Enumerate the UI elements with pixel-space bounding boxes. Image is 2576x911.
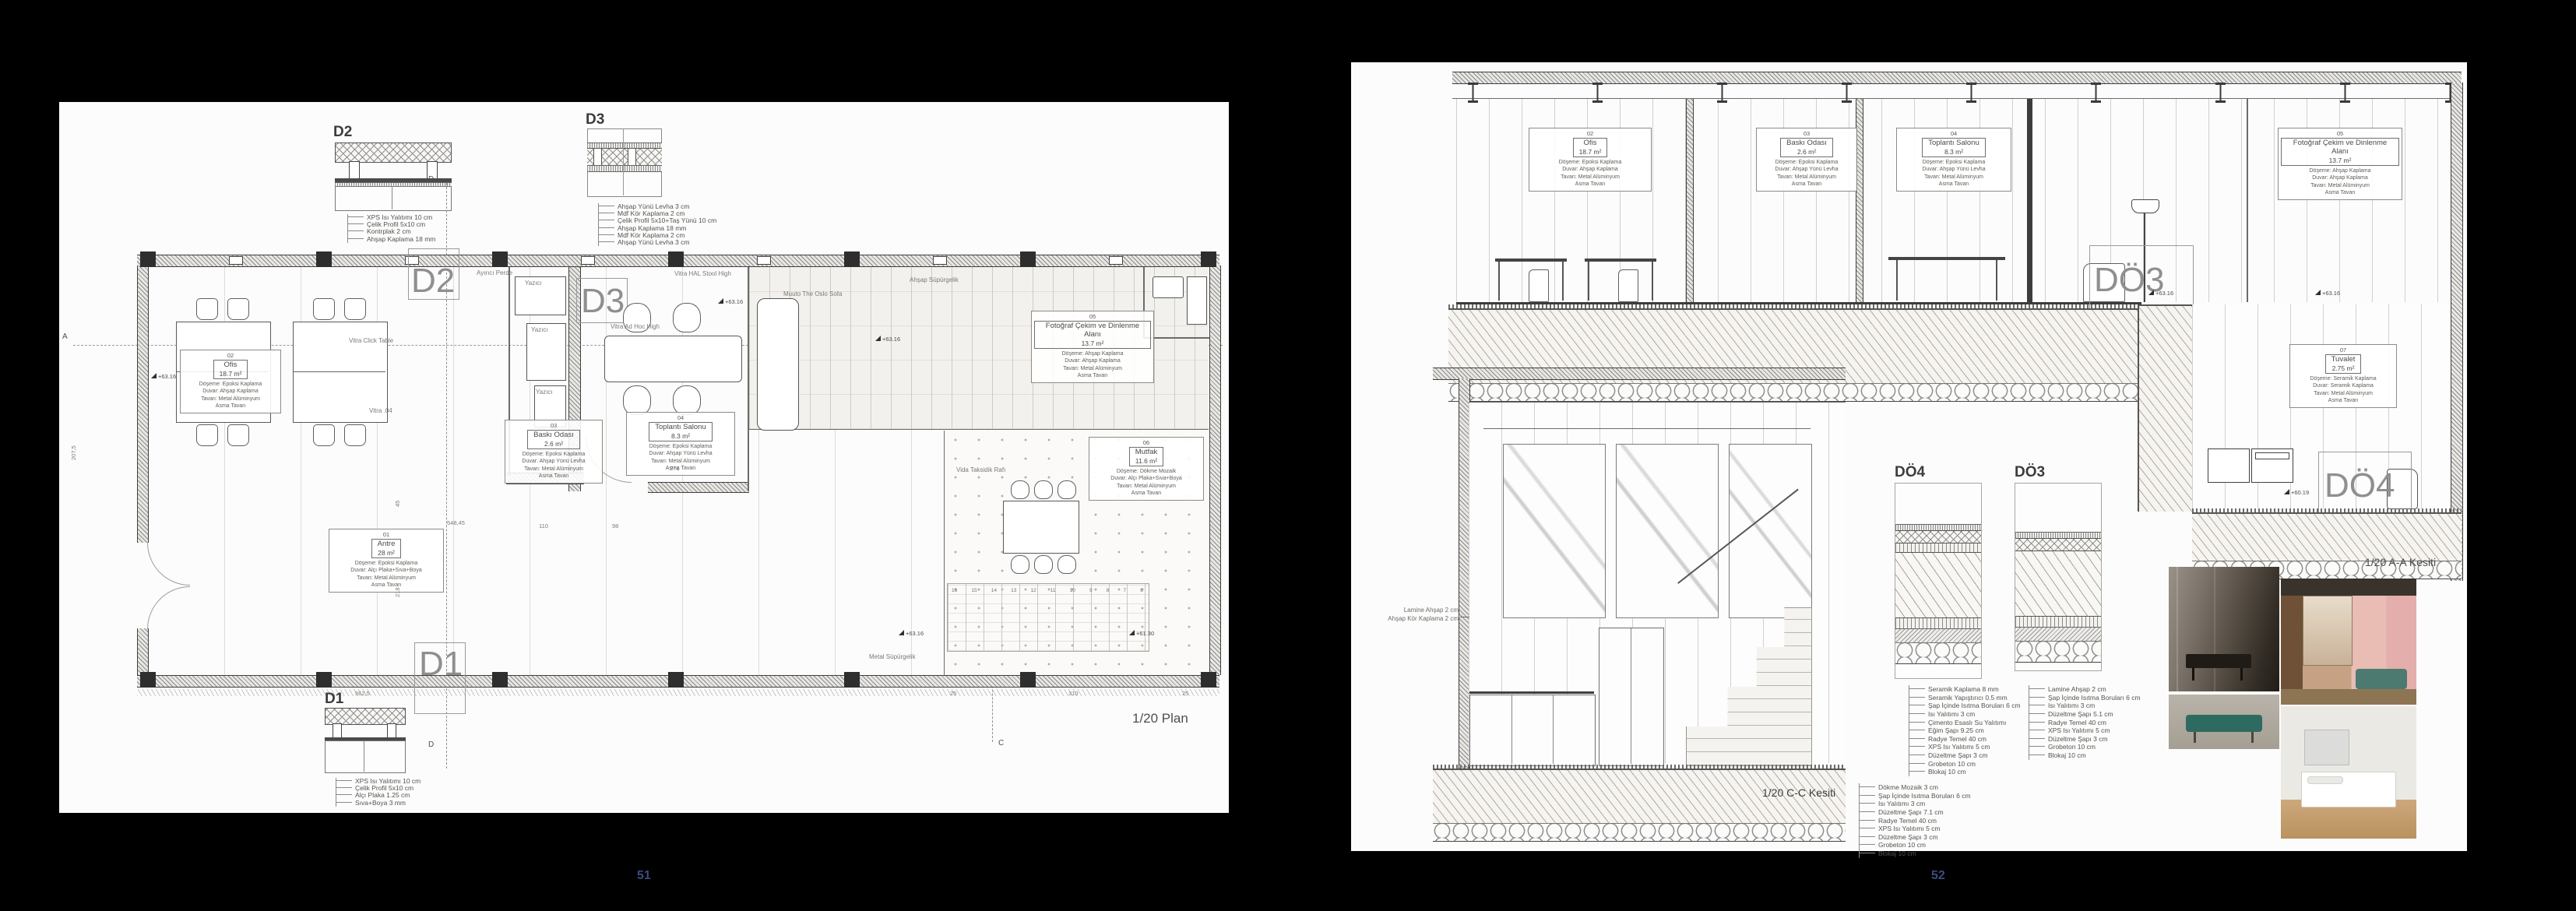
column <box>1020 672 1036 688</box>
office-chair <box>313 424 335 446</box>
aa-ground-stones <box>1448 383 2138 402</box>
dining-chair <box>1011 555 1029 574</box>
service-counter <box>1187 276 1207 325</box>
aa-retaining-wall <box>2138 304 2194 512</box>
stair-block <box>947 583 1149 652</box>
dim-207: 207,5 <box>70 445 77 460</box>
room-label-aa-ofis: 02 Ofis 18.7 m² Döşeme: Epoksi KaplamaDu… <box>1529 128 1652 192</box>
marker-d2: D2 <box>411 264 455 298</box>
ann-raf: Vida Taksidik Rafı <box>956 466 1005 473</box>
cc-section-label: 1/20 C-C Kesiti <box>1762 786 1835 799</box>
aa-office-chair <box>1529 269 1549 302</box>
column <box>316 672 332 688</box>
plan-wall-left-lower <box>137 628 149 675</box>
mullion <box>1109 256 1123 265</box>
detail-d2-label: D2 <box>333 124 352 141</box>
column <box>140 672 156 688</box>
mullion <box>581 256 595 265</box>
meeting-stool <box>623 385 651 415</box>
level-mark: +63.16 <box>151 373 176 380</box>
office-chair <box>196 424 218 446</box>
dim-548: 548,45 <box>447 519 465 526</box>
dim-25a: 25 <box>950 690 956 697</box>
cc-floor-legend: Dökme Mozaik 3 cmŞap İçinde Isıtma Borul… <box>1859 783 1971 858</box>
ibeam-column <box>1592 83 1603 103</box>
stair-numbers: 161514131211109876 <box>952 588 1143 593</box>
cc-wall-note-leader <box>1460 617 1469 617</box>
ibeam-column <box>1842 83 1852 103</box>
printer-label: Yazıcı <box>525 280 542 287</box>
printer-label: Yazıcı <box>536 389 553 396</box>
dim-562: 562,5 <box>355 690 370 697</box>
left-page-plan: D2 XPS Isı Yalıtımı 10 cmÇelik Profil 5x… <box>59 102 1229 813</box>
detail-d3-legend: Ahşap Yünü Levha 3 cmMdf Kör Kaplama 2 c… <box>598 203 716 246</box>
ibeam-column <box>1717 83 1727 103</box>
detail-d1-label: D1 <box>325 691 343 708</box>
detail-do3-column <box>2015 483 2102 671</box>
room-label-mutfak: 06 Mutfak 11.6 m² Döşeme: Dökme MozaikDu… <box>1089 437 1204 501</box>
detail-d2: D2 XPS Isı Yalıtımı 10 cmÇelik Profil 5x… <box>333 124 352 141</box>
dim-98: 98 <box>612 522 618 529</box>
room-label-toplanti: 04 Toplantı Salonu 8.3 m² Döşeme: Epoksi… <box>626 412 735 476</box>
marker-d3: D3 <box>581 284 625 318</box>
room-label-baski: 03 Baskı Odası 2.6 m² Döşeme: Epoksi Kap… <box>505 420 603 484</box>
dim-25b: 25 <box>1182 690 1188 697</box>
axis-c: C <box>998 739 1004 747</box>
cc-window <box>1616 444 1719 618</box>
dining-chair <box>1011 480 1029 499</box>
column <box>492 251 508 267</box>
level-mark: +63.16 <box>875 336 900 343</box>
column <box>492 672 508 688</box>
plan-scale-label: 1/20 Plan <box>1132 711 1188 726</box>
photo-pink-curtain-room <box>2281 579 2416 705</box>
dim-45: 45 <box>394 501 401 507</box>
office-chair <box>227 424 249 446</box>
room-label-aa-baski: 03 Baskı Odası 2.6 m² Döşeme: Epoksi Kap… <box>1756 128 1857 192</box>
spread-background: { "document": { "background": "#000000",… <box>0 0 2576 911</box>
marker-do4: DÖ4 <box>2324 469 2395 503</box>
aa-wall-right-end <box>2451 83 2463 581</box>
aa-wall-4 <box>2247 99 2248 302</box>
photo-stone-lounge <box>2169 567 2279 691</box>
office-chair <box>196 298 218 320</box>
ann-vitra-click: Vitra Click Table <box>349 337 393 344</box>
room-label-aa-toplanti: 04 Toplantı Salonu 8.3 m² Döşeme: Epoksi… <box>1896 128 2011 192</box>
ann-ayirici-perde: Ayırıcı Perde <box>477 269 512 276</box>
mullion <box>229 256 243 265</box>
dining-table <box>1003 501 1079 554</box>
level-mark: +63.16 <box>899 630 924 637</box>
detail-d3: D3 Ahşap Yünü Levha 3 cmMdf Kör Kaplama … <box>586 111 604 128</box>
service-sink <box>1153 276 1184 298</box>
meeting-table <box>604 336 742 382</box>
ibeam-column <box>1468 83 1478 103</box>
detail-d3-drawing <box>587 128 662 197</box>
ibeam-column <box>2215 83 2226 103</box>
page-number-52: 52 <box>1931 869 1945 883</box>
dining-chair <box>1057 555 1076 574</box>
ibeam-column <box>2091 83 2101 103</box>
aa-roof-slab <box>1452 72 2462 84</box>
axis-d-top: D <box>428 175 434 184</box>
detail-d2-drawing <box>335 142 452 209</box>
aa-desk-leg <box>1562 262 1564 301</box>
dining-chair <box>1034 480 1053 499</box>
column <box>1020 251 1036 267</box>
room-label-fotograf: 05 Fotoğraf Çekim ve Dinlenme Alanı 13.7… <box>1031 311 1154 383</box>
cc-wall-note: Lamine Ahşap 2 cmAhşap Kör Kaplama 2 cm <box>1356 606 1459 623</box>
column <box>1201 251 1216 267</box>
aa-desk <box>1495 259 1567 262</box>
level-mark: +60.19 <box>2284 489 2309 496</box>
tuvalet-counter <box>2251 448 2293 483</box>
cc-window <box>1503 444 1606 618</box>
dim-110: 110 <box>539 522 548 529</box>
room-label-aa-fotograf: 05 Fotoğraf Çekim ve Dinlenme Alanı 13.7… <box>2278 128 2402 200</box>
mullion <box>933 256 947 265</box>
meeting-room-wall-bottom <box>648 482 749 493</box>
aa-floor-lamp-shade <box>2131 199 2159 213</box>
office-chair <box>313 298 335 320</box>
ibeam-column <box>1966 83 1976 103</box>
column <box>668 251 684 267</box>
detail-do3-label: DÖ3 <box>2015 464 2045 481</box>
ann-vitra-04: Vitra .04 <box>369 407 392 414</box>
room-label-tuvalet: 07 Tuvalet 2.75 m² Döşeme: Seramik Kapla… <box>2289 344 2397 408</box>
aa-meeting-table-leg <box>1896 260 1898 301</box>
dim-218: 218 <box>394 587 401 597</box>
cc-transom-line <box>1483 428 1811 429</box>
detail-do3: DÖ3 Lamine Ahşap 2 cmŞap İçinde Isıtma B… <box>2015 464 2045 481</box>
aa-office-chair <box>1618 269 1638 302</box>
ann-vitra-adhoc: Vitra Ad Hoc High <box>611 323 660 330</box>
detail-do4-legend: Seramik Kaplama 8 mmSeramik Yapıştırıcı … <box>1909 685 2021 776</box>
plan-wall-right <box>1209 266 1221 675</box>
right-page-sections: 02 Ofis 18.7 m² Döşeme: Epoksi KaplamaDu… <box>1351 62 2467 851</box>
ann-metal-supurgelik: Metal Süpürgelik <box>869 653 916 660</box>
cc-window <box>1729 444 1812 618</box>
aa-wall-3 <box>2027 99 2032 302</box>
aa-desk-leg <box>1588 262 1589 301</box>
oslo-sofa <box>757 298 799 431</box>
ann-oslo-sofa: Muuto The Oslo Sofa <box>783 290 842 297</box>
office-chair <box>227 298 249 320</box>
cc-tall-cabinet <box>1599 628 1664 766</box>
column <box>844 251 860 267</box>
room-label-ofis: 02 Ofis 18.7 m² Döşeme: Epoksi KaplamaDu… <box>180 350 281 413</box>
level-mark: +63.16 <box>2148 290 2173 297</box>
detail-d1: D1 XPS Isı Yalıtımı 10 cmÇelik Profil 5x… <box>325 691 343 708</box>
dining-chair <box>1057 480 1076 499</box>
aa-section-label: 1/20 A-A Kesiti <box>2365 556 2436 568</box>
plan-zone-divider-v <box>944 431 945 675</box>
aa-desk-leg <box>1498 262 1500 301</box>
aa-wall-1 <box>1686 99 1694 302</box>
marker-d1: D1 <box>419 647 463 681</box>
axis-a: A <box>62 332 68 341</box>
detail-do4-label: DÖ4 <box>1895 464 1925 481</box>
tuvalet-ground <box>2192 512 2462 562</box>
ibeam-column <box>2340 83 2350 103</box>
detail-d2-legend: XPS Isı Yalıtımı 10 cmÇelik Profil 5x10 … <box>347 214 435 243</box>
office-chair <box>344 424 366 446</box>
ann-vitra-hal: Vitra HAL Stool High <box>674 270 731 277</box>
dim-310: 310 <box>1068 690 1079 697</box>
meeting-room-wall-right <box>748 267 749 491</box>
room-label-antre: 01 Antre 28 m² Döşeme: Epoksi KaplamaDuv… <box>329 529 444 593</box>
plan-zone-divider-h <box>749 429 1209 430</box>
detail-d1-drawing <box>325 708 406 773</box>
plan-sidewalk-hatch <box>137 689 1219 696</box>
column <box>1201 672 1216 688</box>
cc-roof-slab <box>1433 368 1846 380</box>
dim-271: 271 <box>670 465 680 472</box>
aa-meeting-table <box>1888 257 2005 260</box>
photo-teal-bench <box>2169 695 2279 749</box>
column <box>844 672 860 688</box>
aa-desk <box>1585 259 1656 262</box>
tuvalet-cabinet <box>2208 448 2250 483</box>
photo-bathroom-vanity <box>2281 706 2416 839</box>
detail-d1-legend: XPS Isı Yalıtımı 10 cmÇelik Profil 5x10 … <box>336 778 421 807</box>
detail-d3-label: D3 <box>586 111 604 128</box>
column <box>140 251 156 267</box>
meeting-stool <box>673 303 701 332</box>
cc-base-cabinet <box>1469 695 1596 766</box>
detail-do4: DÖ4 Seramik Kaplama 8 mmSeramik Yapıştır… <box>1895 464 1925 481</box>
photo-bench <box>2186 654 2251 668</box>
mullion <box>757 256 771 265</box>
aa-meeting-table-leg <box>1996 260 1997 301</box>
printer-label: Yazıcı <box>531 326 548 333</box>
plan-wall-left-upper <box>137 266 149 543</box>
page-number-51: 51 <box>637 869 651 883</box>
cc-ground-stones <box>1433 823 1846 842</box>
dining-chair <box>1034 555 1053 574</box>
ann-ahsap-supurgelik: Ahşap Süpürgelik <box>910 276 959 283</box>
column <box>668 672 684 688</box>
axis-d-bottom: D <box>428 740 434 749</box>
column <box>316 251 332 267</box>
detail-do4-column <box>1895 483 1982 679</box>
cc-counter-line <box>1469 691 1594 694</box>
level-mark: +63.16 <box>2315 290 2340 297</box>
office-chair <box>344 298 366 320</box>
level-mark: +63.16 <box>718 298 743 305</box>
meeting-stool <box>673 385 701 415</box>
detail-do3-legend: Lamine Ahşap 2 cmŞap İçinde Isıtma Borul… <box>2029 685 2141 760</box>
aa-desk-leg <box>1652 262 1653 301</box>
level-mark: +61.30 <box>1129 630 1154 637</box>
